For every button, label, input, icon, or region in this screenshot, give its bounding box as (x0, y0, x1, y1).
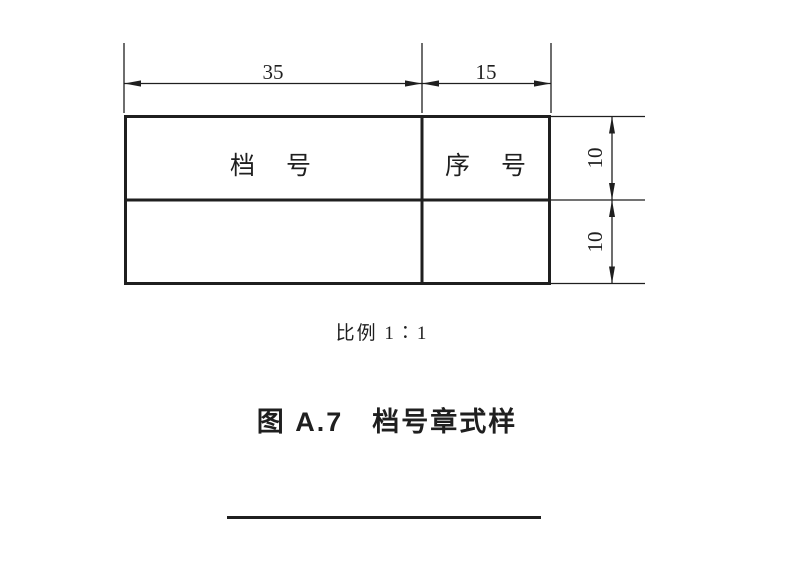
dim-label-width-right: 15 (476, 60, 497, 84)
dim-label-height-upper: 10 (583, 148, 607, 169)
stamp-table: 档 号 序 号 (126, 117, 550, 284)
arrowhead-left-icon (124, 80, 141, 86)
scale-note: 比例 1∶1 (336, 318, 429, 345)
top-width-dimension: 35 15 (124, 43, 551, 113)
footer-rule (227, 516, 541, 519)
cell-label-danghao: 档 号 (230, 152, 314, 180)
arrowhead-right-icon (534, 80, 551, 86)
arrowhead-right-icon (405, 80, 422, 86)
arrowhead-left-icon (422, 80, 439, 86)
document-page: 35 15 档 号 序 号 10 10 比例 1∶1 图 A.7 档号章式样 (0, 0, 802, 578)
archive-stamp-drawing: 35 15 档 号 序 号 10 10 (0, 0, 802, 340)
arrowhead-up-icon (609, 200, 615, 217)
right-height-dimension: 10 10 (551, 117, 645, 284)
arrowhead-up-icon (609, 117, 615, 134)
figure-title: 图 A.7 档号章式样 (257, 400, 518, 439)
arrowhead-down-icon (609, 267, 615, 284)
dim-label-width-left: 35 (263, 60, 284, 84)
cell-label-xuhao: 序 号 (445, 152, 529, 180)
arrowhead-down-icon (609, 183, 615, 200)
dim-label-height-lower: 10 (583, 232, 607, 253)
